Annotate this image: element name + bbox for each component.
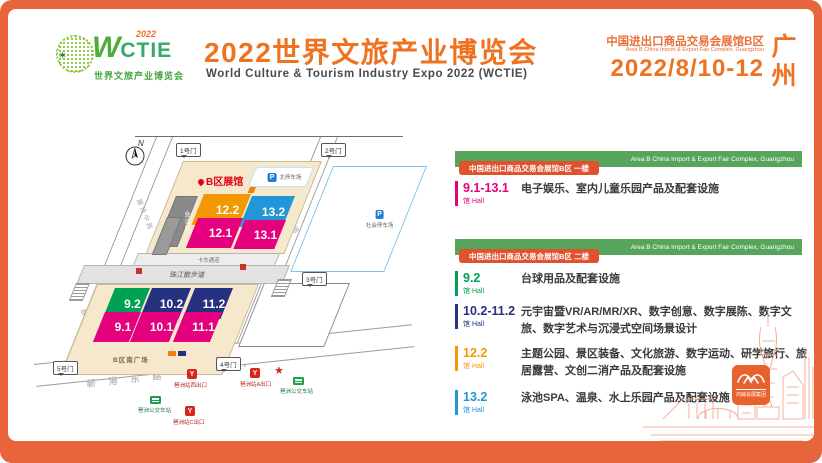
bus-stop-east-label: 琶洲公交车站 (280, 387, 313, 395)
hall-range: 13.2 (463, 390, 487, 404)
parking-icon: P (268, 173, 277, 182)
bus-icon (150, 396, 161, 404)
bus-stop-west-label: 琶洲公交车站 (138, 406, 171, 414)
event-dates: 2022/8/10-12 (578, 55, 764, 83)
gate-3: 3号门 (302, 272, 327, 286)
star-marker: ★ (274, 364, 284, 377)
logo-letters-ctie: CTIE (120, 39, 172, 62)
hall-unit-label: 馆 Hall (463, 319, 515, 329)
logo-tagline: 世界文旅产业博览会 (94, 69, 184, 82)
floor1-tag: 中国进出口商品交易会展馆B区 一楼 (459, 161, 599, 175)
hall-description: 电子娱乐、室内儿童乐园产品及配套设施 (521, 181, 807, 198)
metro-exit-west-label: 琶洲站西出口 (174, 381, 207, 389)
wctie-logo: ✶ WCTIE 2022 世界文旅产业博览会 (56, 29, 201, 91)
hall-unit-label: 馆 Hall (463, 286, 484, 296)
east-parking-label: 社会停车场 (366, 221, 394, 229)
expo-poster: ✶ WCTIE 2022 世界文旅产业博览会 2022世界文旅产业博览会 Wor… (0, 0, 822, 463)
gate-4: 4号门 (216, 357, 241, 371)
hall-unit-label: 馆 Hall (463, 361, 487, 371)
organizer-name: 鸿威会展集团 (736, 389, 766, 398)
metro-icon: Y (185, 406, 195, 416)
hall-range: 10.2-11.2 (463, 304, 515, 318)
parking-icon: P (375, 210, 384, 219)
hall-unit-label: 馆 Hall (463, 405, 487, 415)
north-parking-label: 北停车场 (279, 173, 301, 181)
area-b-label: B区展馆 (198, 173, 243, 188)
bus-icon (293, 377, 304, 385)
map-boundary-line (135, 136, 403, 137)
floor2-tag: 中国进出口商品交易会展馆B区 二楼 (459, 249, 599, 263)
south-plaza-label: B区南广场 (113, 354, 149, 364)
metro-icon: Y (187, 369, 197, 379)
gate-1: 1号门 (176, 143, 201, 157)
logo-acronym: WCTIE 2022 (92, 31, 172, 65)
promenade-marker-2 (240, 264, 246, 270)
stairs-west (69, 283, 90, 301)
metro-exit-c-label: 琶洲站C出口 (173, 418, 204, 426)
venue-map: N 展场中路 展场中路 展场东路 展场东路 新港东路 B区展馆 P北停车场 会议 (28, 121, 448, 441)
hall-range: 9.2 (463, 271, 484, 285)
metro-exit-a-label: 琶洲站A出口 (240, 380, 271, 388)
logo-letter-w: W (92, 31, 120, 64)
hall-unit-label: 馆 Hall (463, 196, 509, 206)
north-parking: P北停车场 (248, 167, 314, 187)
star-icon: ✶ (58, 49, 67, 62)
gate-2: 2号门 (321, 143, 346, 157)
conference-label: 会议区 (182, 211, 191, 232)
logo-year: 2022 (136, 29, 156, 39)
hall-range: 9.1-13.1 (463, 181, 509, 195)
organizer-logo: 鸿威会展集团 (732, 365, 770, 405)
venue-name-en: Area B China Import & Export Fair Comple… (578, 47, 764, 53)
page-title: 2022世界文旅产业博览会 (204, 31, 538, 71)
hall-range: 12.2 (463, 346, 487, 360)
hall-description: 台球用品及配套设施 (521, 271, 807, 288)
gate-5: 5号门 (53, 361, 78, 375)
svg-text:N: N (138, 139, 144, 148)
promenade-marker-1 (136, 268, 142, 274)
page-subtitle: World Culture & Tourism Industry Expo 20… (206, 68, 528, 80)
city-skyline-illustration (643, 307, 814, 441)
wings-icon (735, 368, 767, 388)
plaza-marker-blue (178, 351, 186, 356)
promenade: 珠江散步道 (76, 265, 290, 284)
poster-card: ✶ WCTIE 2022 世界文旅产业博览会 2022世界文旅产业博览会 Wor… (8, 9, 814, 441)
city-name: 广州 (769, 33, 799, 91)
metro-icon: Y (250, 368, 260, 378)
location-pin-icon (197, 178, 205, 186)
plaza-marker-orange (168, 351, 176, 356)
